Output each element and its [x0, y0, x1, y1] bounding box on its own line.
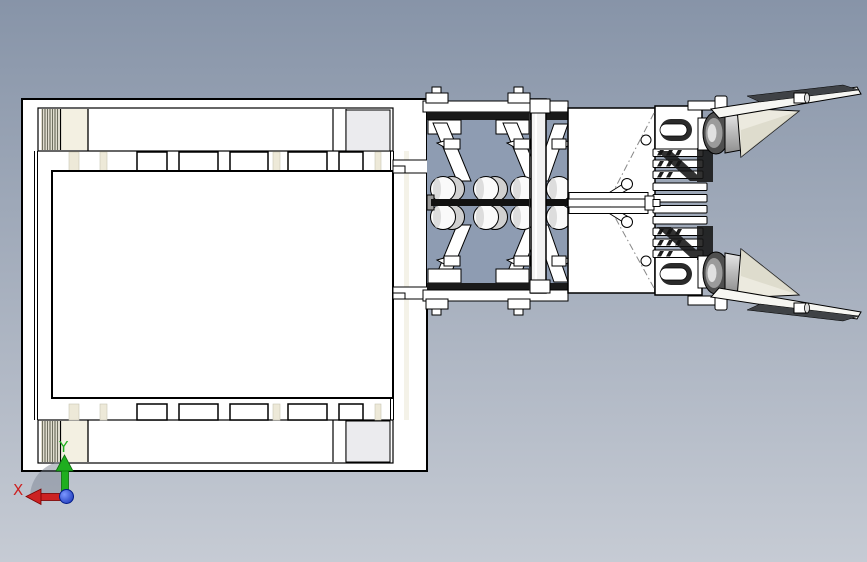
upper-blade-roller-cap	[805, 93, 810, 103]
frame-opening[interactable]	[52, 171, 393, 398]
tine-guide-block-bottom	[655, 256, 702, 295]
drive-shaft[interactable]	[431, 199, 568, 206]
frame-top-band	[38, 108, 393, 151]
viewport-canvas[interactable]: X Y	[0, 0, 867, 562]
plate-hole-bottom	[641, 256, 651, 266]
frame-bottom-band	[38, 420, 393, 463]
frame-rail-post	[404, 151, 409, 420]
plate-hole-top	[641, 135, 651, 145]
lower-blade-roller-cap	[805, 303, 810, 313]
cad-viewport[interactable]: X Y	[0, 0, 867, 562]
separator-plate[interactable]	[568, 106, 713, 295]
frame[interactable]	[22, 99, 428, 471]
y-axis-label: Y	[58, 438, 69, 456]
conveyor[interactable]	[423, 87, 573, 315]
x-axis-label: X	[13, 481, 23, 499]
z-origin-ball[interactable]	[60, 490, 74, 504]
tine-guide-block-top	[655, 106, 702, 150]
